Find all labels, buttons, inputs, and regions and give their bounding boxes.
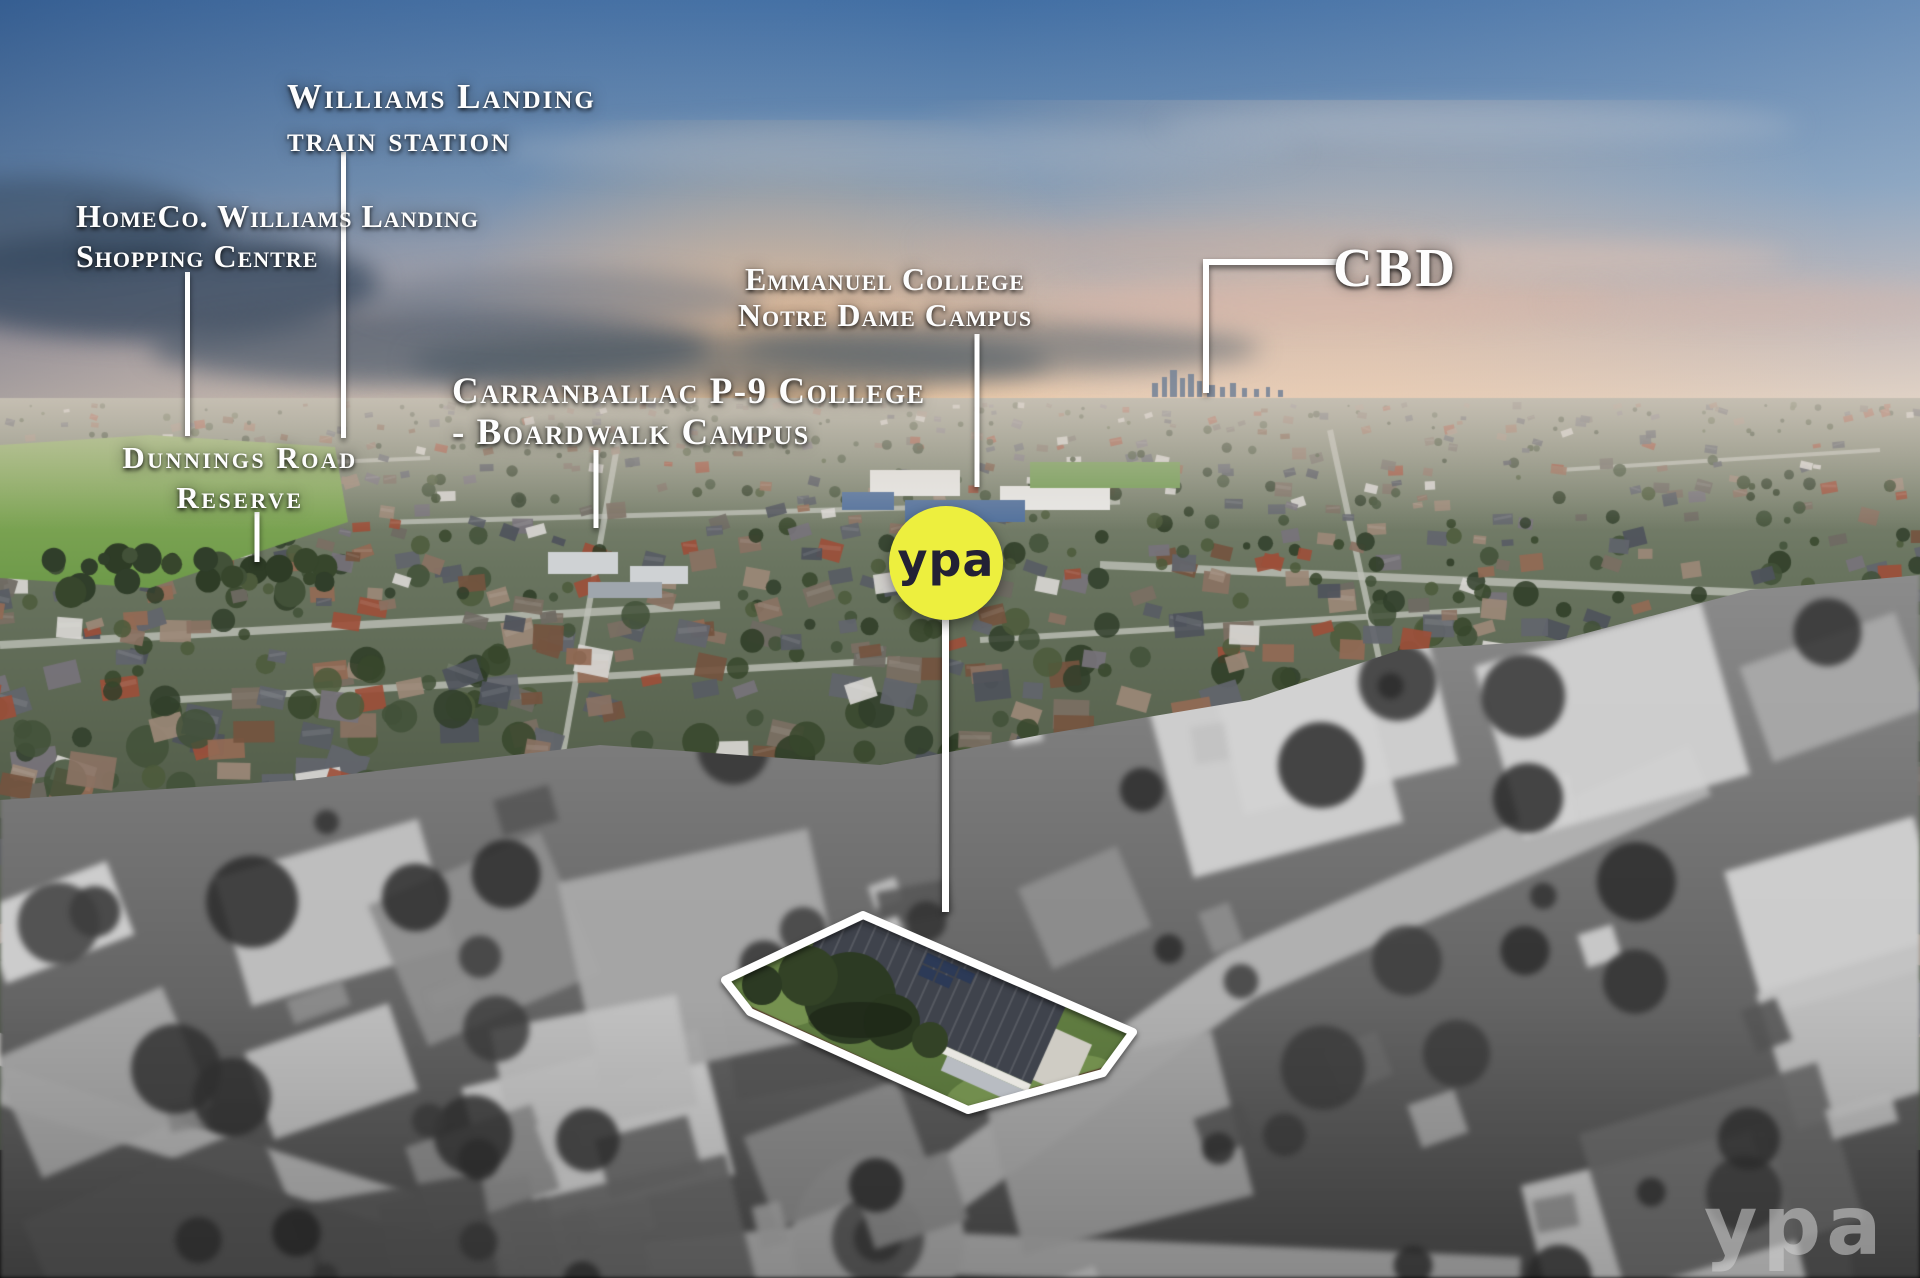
ypa-badge-text: ypa (898, 533, 995, 587)
aerial-property-photo: Williams Landing train station HomeCo. W… (0, 0, 1920, 1278)
label-reserve: Dunnings Road Reserve (85, 438, 395, 517)
label-boardwalk-college-line2: - Boardwalk Campus (452, 413, 925, 454)
annotation-overlay (0, 0, 1920, 1278)
label-shopping-centre-line1: HomeCo. Williams Landing (76, 196, 479, 236)
ypa-watermark-logo: ypa (1704, 1186, 1886, 1268)
label-boardwalk-college: Carranballac P-9 College - Boardwalk Cam… (452, 372, 925, 453)
label-train-station-line2: train station (287, 119, 596, 162)
label-shopping-centre-line2: Shopping Centre (76, 236, 479, 276)
label-notre-dame-line2: Notre Dame Campus (718, 298, 1052, 334)
ypa-agency-badge: ypa (889, 506, 1003, 620)
label-boardwalk-college-line1: Carranballac P-9 College (452, 372, 925, 413)
label-reserve-line1: Dunnings Road (85, 438, 395, 478)
property-boundary-outline (725, 915, 1133, 1110)
label-shopping-centre: HomeCo. Williams Landing Shopping Centre (76, 196, 479, 277)
label-train-station: Williams Landing train station (287, 76, 596, 161)
pointer-line-cbd (1206, 262, 1337, 393)
label-cbd: CBD (1333, 236, 1458, 299)
label-notre-dame-college: Emmanuel College Notre Dame Campus (718, 262, 1052, 334)
label-train-station-line1: Williams Landing (287, 76, 596, 119)
label-notre-dame-line1: Emmanuel College (718, 262, 1052, 298)
label-reserve-line2: Reserve (85, 478, 395, 518)
